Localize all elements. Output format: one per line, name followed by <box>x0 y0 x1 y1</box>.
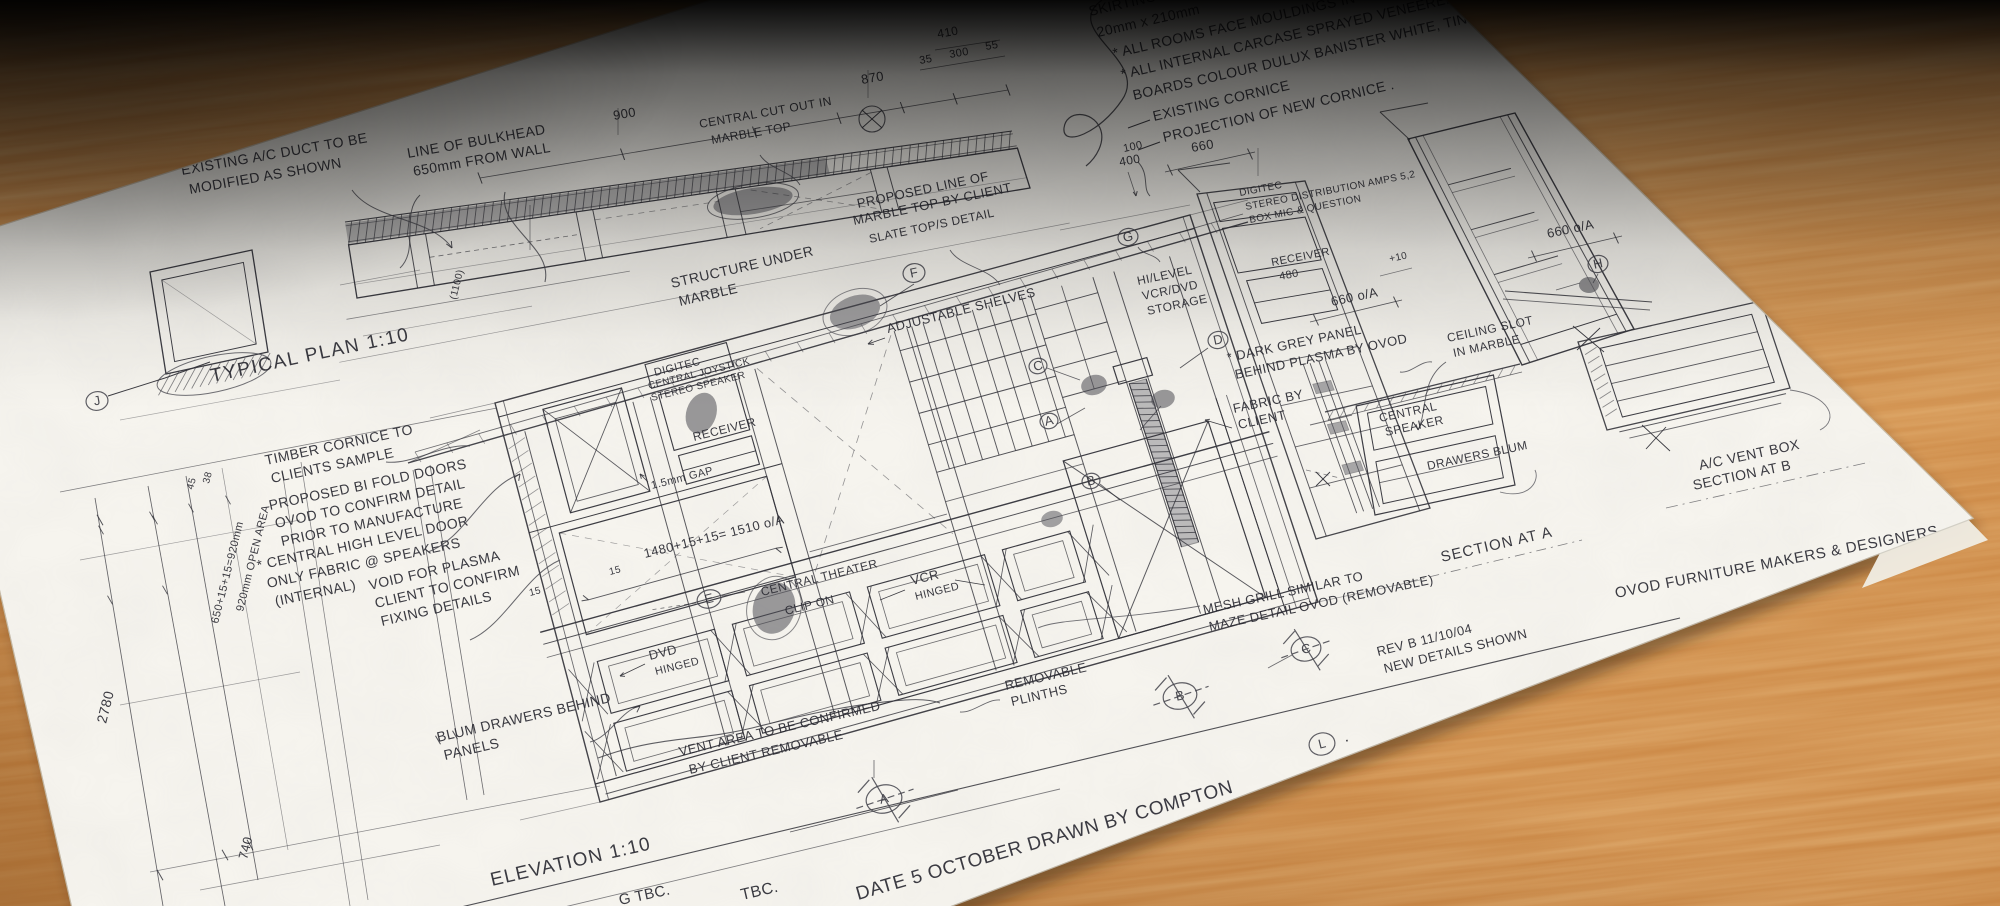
svg-text:35: 35 <box>918 53 933 67</box>
